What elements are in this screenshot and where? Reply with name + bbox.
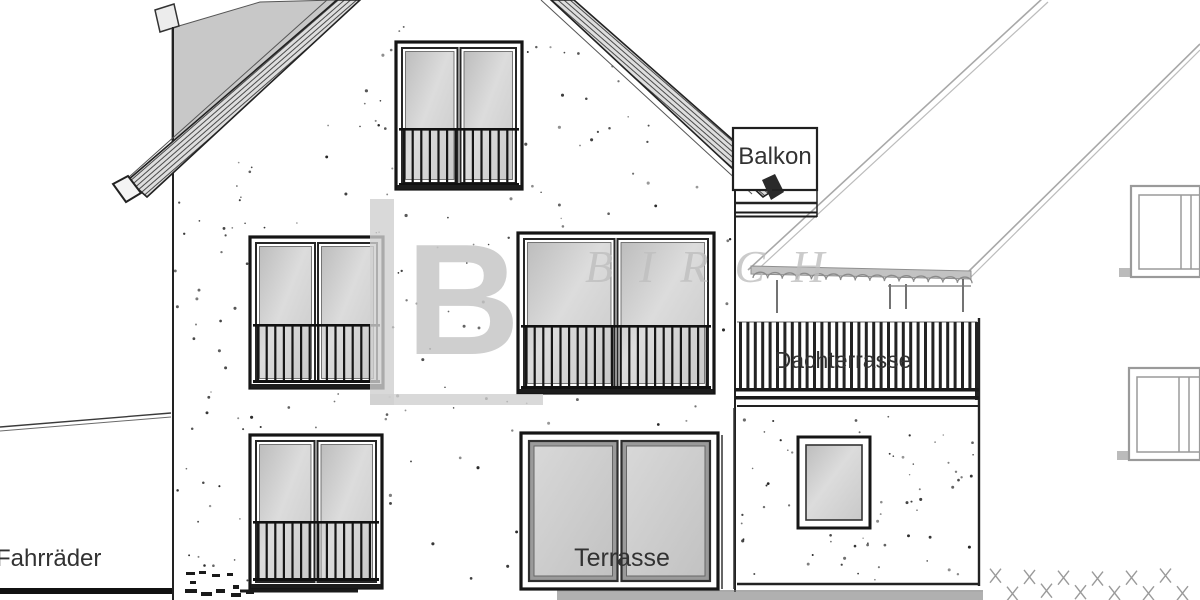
label-balkon: Balkon	[738, 143, 811, 170]
label-fahrraeder: Fahrräder	[0, 545, 101, 572]
watermark-initial: B	[406, 212, 520, 388]
label-terrasse: Terrasse	[574, 544, 670, 572]
balcony-structure	[733, 128, 817, 217]
watermark-bar-horizontal	[370, 394, 543, 405]
house-elevation-drawing: B BIRCH Balkon Dachterrasse Terrasse Fah…	[0, 0, 1200, 600]
watermark-bar-vertical	[370, 199, 394, 405]
elevation-sheet: B BIRCH Balkon Dachterrasse Terrasse Fah…	[0, 0, 1200, 600]
watermark-brand: BIRCH	[585, 241, 850, 292]
label-dachterrasse: Dachterrasse	[775, 347, 912, 373]
